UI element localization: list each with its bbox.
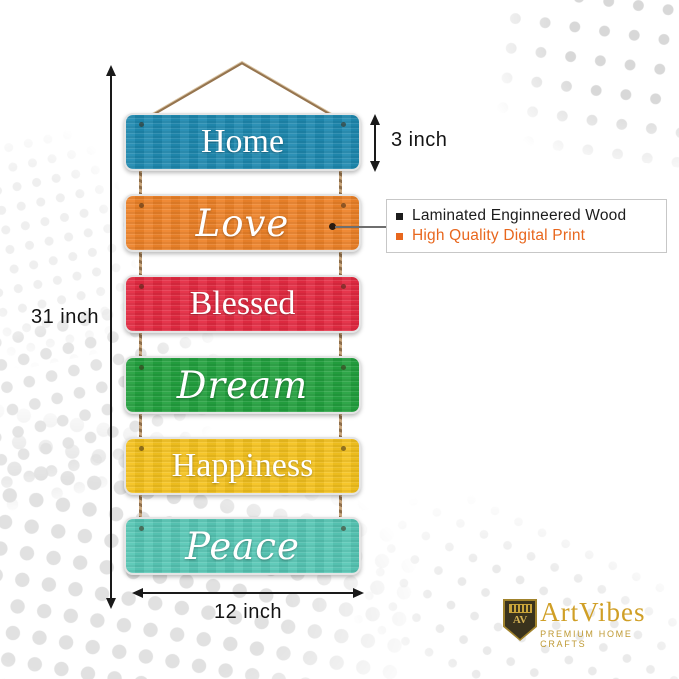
plank-height-dimension-label: 3 inch [391,129,447,152]
plank-happiness-text: Happiness [172,449,314,483]
feature-wood-label: Laminated Enginneered Wood [412,207,626,225]
crown-stripes-icon [509,604,532,613]
feature-row-wood: Laminated Enginneered Wood [396,207,657,225]
plank-blessed: Blessed [124,275,361,333]
plank-dream: Dream [124,356,361,414]
plank-blessed-text: Blessed [190,287,296,321]
brand-shield-icon: AV [503,599,537,641]
feature-print-label: High Quality Digital Print [412,227,585,245]
plank-peace-text: Peace [185,528,300,565]
plank-love: Love [124,194,361,252]
callout-connector-line-icon [335,226,386,228]
halftone-dots-top-right-icon [483,0,679,168]
brand-tagline: PREMIUM HOME CRAFTS [540,629,679,649]
brand-text: ArtVibes PREMIUM HOME CRAFTS [540,599,679,649]
width-dimension-arrow-icon [142,592,354,594]
plank-height-dimension-arrow-icon [374,124,376,162]
square-bullet-icon [396,233,403,240]
plank-peace: Peace [124,517,361,575]
plank-love-text: Love [196,205,290,242]
plank-dream-text: Dream [177,367,308,404]
plank-home-text: Home [201,125,284,159]
product-image: Home Love Blessed Dream Happiness Peace … [0,0,679,679]
feature-row-print: High Quality Digital Print [396,227,657,245]
brand-logo: AV ArtVibes PREMIUM HOME CRAFTS [503,599,679,649]
plank-home: Home [124,113,361,171]
brand-name: ArtVibes [540,599,679,626]
brand-shield-inner: AV [505,601,535,639]
square-bullet-icon [396,213,403,220]
width-dimension-label: 12 inch [142,601,354,624]
height-dimension-label: 31 inch [24,306,106,329]
brand-monogram: AV [513,614,527,626]
plank-happiness: Happiness [124,437,361,495]
features-callout-box: Laminated Enginneered Wood High Quality … [386,199,667,253]
height-dimension-arrow-icon [110,75,112,599]
